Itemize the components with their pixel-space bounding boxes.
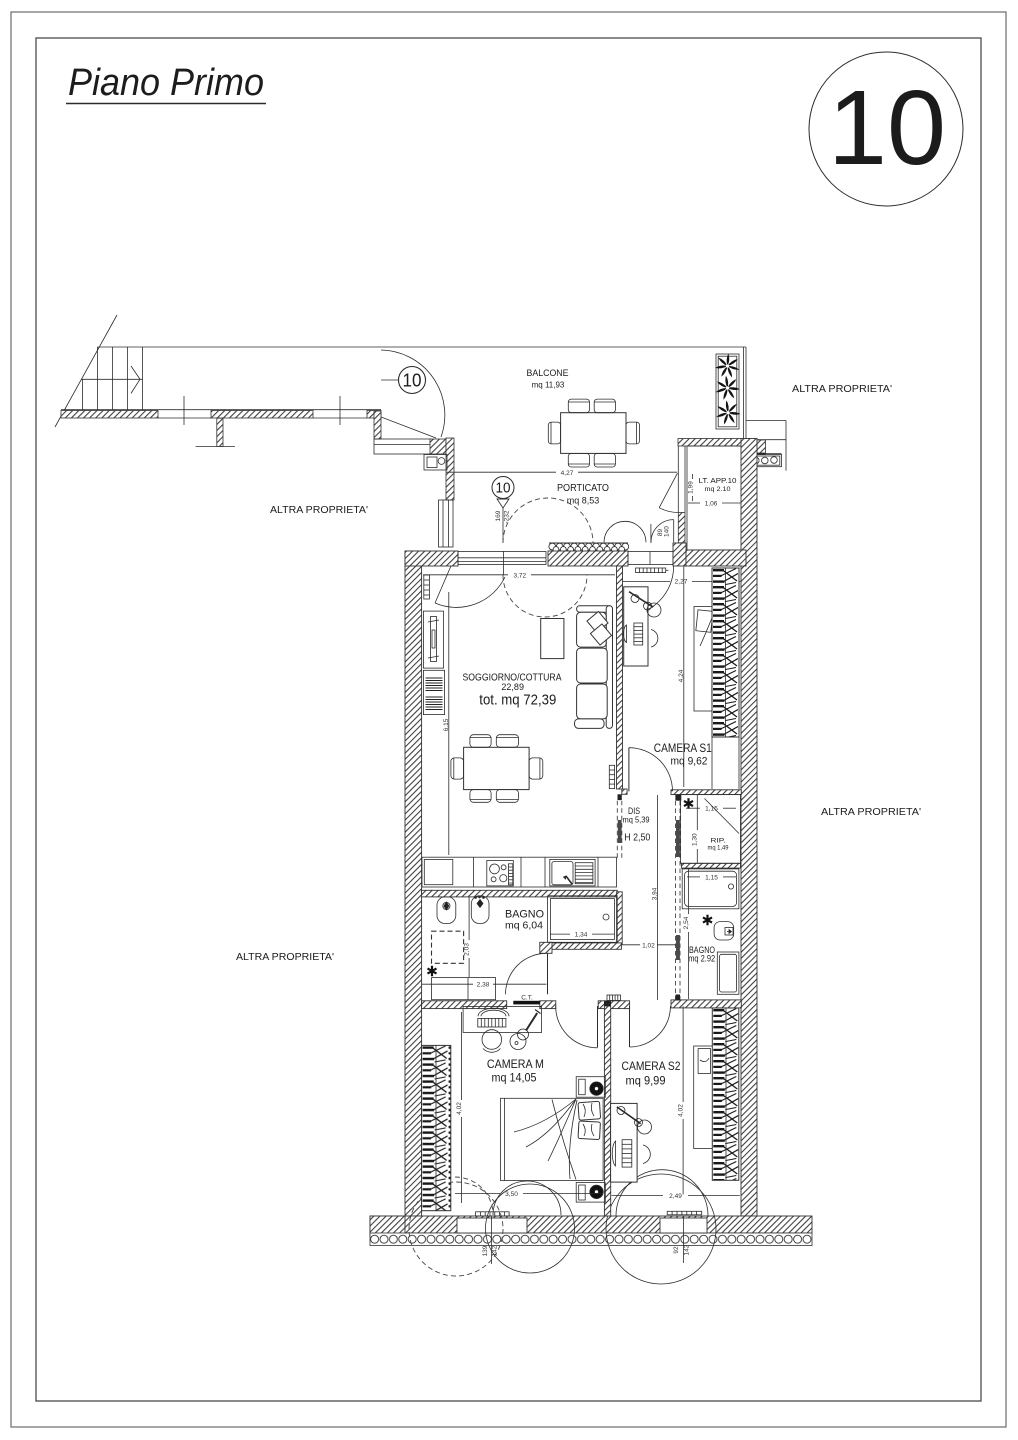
svg-text:tot. mq 72,39: tot. mq 72,39 [479,693,556,709]
svg-text:PORTICATO: PORTICATO [557,483,609,494]
svg-text:1,30: 1,30 [692,833,699,846]
svg-text:3,50: 3,50 [505,1191,518,1198]
svg-text:140: 140 [664,526,671,537]
svg-text:1,06: 1,06 [705,501,718,508]
svg-text:ALTRA PROPRIETA': ALTRA PROPRIETA' [236,952,334,963]
svg-text:mq 6,04: mq 6,04 [505,920,543,932]
svg-text:1,34: 1,34 [575,932,588,939]
svg-text:3,94: 3,94 [652,887,659,900]
svg-text:139: 139 [482,1245,489,1256]
svg-text:mq 9,62: mq 9,62 [671,756,708,768]
svg-text:92: 92 [673,1246,680,1254]
svg-text:mq 9,99: mq 9,99 [626,1076,666,1088]
svg-text:142: 142 [492,1245,499,1256]
svg-text:C.T.: C.T. [521,995,533,1002]
svg-text:1,02: 1,02 [642,942,655,949]
svg-text:142: 142 [684,1244,691,1255]
svg-text:CAMERA S2: CAMERA S2 [622,1059,681,1073]
svg-text:4,02: 4,02 [456,1102,463,1115]
svg-text:22,89: 22,89 [501,682,524,692]
svg-text:RIP.: RIP. [711,838,726,845]
svg-text:3,72: 3,72 [513,573,526,580]
svg-text:mq 8,53: mq 8,53 [567,496,600,506]
svg-text:10: 10 [403,370,422,391]
svg-text:2,03: 2,03 [463,943,470,956]
svg-text:H 2,50: H 2,50 [624,832,650,844]
svg-text:mq 5,39: mq 5,39 [623,816,651,825]
svg-text:1,99: 1,99 [688,481,695,494]
svg-text:mq 2.92: mq 2.92 [688,954,715,964]
svg-text:2,38: 2,38 [477,982,490,989]
svg-text:BALCONE: BALCONE [527,368,569,378]
svg-text:CAMERA M: CAMERA M [487,1057,544,1071]
svg-text:10: 10 [828,69,946,187]
svg-text:2,49: 2,49 [669,1193,682,1200]
svg-text:2,54: 2,54 [683,916,690,929]
svg-text:169: 169 [495,510,502,521]
svg-text:mq 14,05: mq 14,05 [492,1073,537,1085]
svg-text:4,24: 4,24 [678,669,685,682]
svg-text:6,15: 6,15 [443,718,450,731]
svg-text:CAMERA S1: CAMERA S1 [654,743,712,755]
svg-text:4,02: 4,02 [677,1104,684,1117]
svg-text:2,27: 2,27 [675,579,688,586]
svg-text:mq 11,93: mq 11,93 [532,381,565,390]
svg-text:LT. APP.10: LT. APP.10 [699,478,737,485]
svg-text:Piano Primo: Piano Primo [68,62,264,104]
svg-text:1,15: 1,15 [705,874,718,881]
svg-text:-232: -232 [504,510,511,523]
svg-text:10: 10 [496,481,511,497]
svg-text:4,27: 4,27 [561,470,574,477]
svg-text:1,15: 1,15 [705,806,718,813]
svg-text:mq 1,49: mq 1,49 [708,846,730,852]
svg-text:DIS: DIS [628,806,640,816]
svg-text:ALTRA PROPRIETA': ALTRA PROPRIETA' [792,384,892,395]
svg-text:ALTRA PROPRIETA': ALTRA PROPRIETA' [270,505,368,516]
svg-text:ALTRA PROPRIETA': ALTRA PROPRIETA' [821,807,921,818]
svg-text:mq 2.10: mq 2.10 [705,487,732,493]
